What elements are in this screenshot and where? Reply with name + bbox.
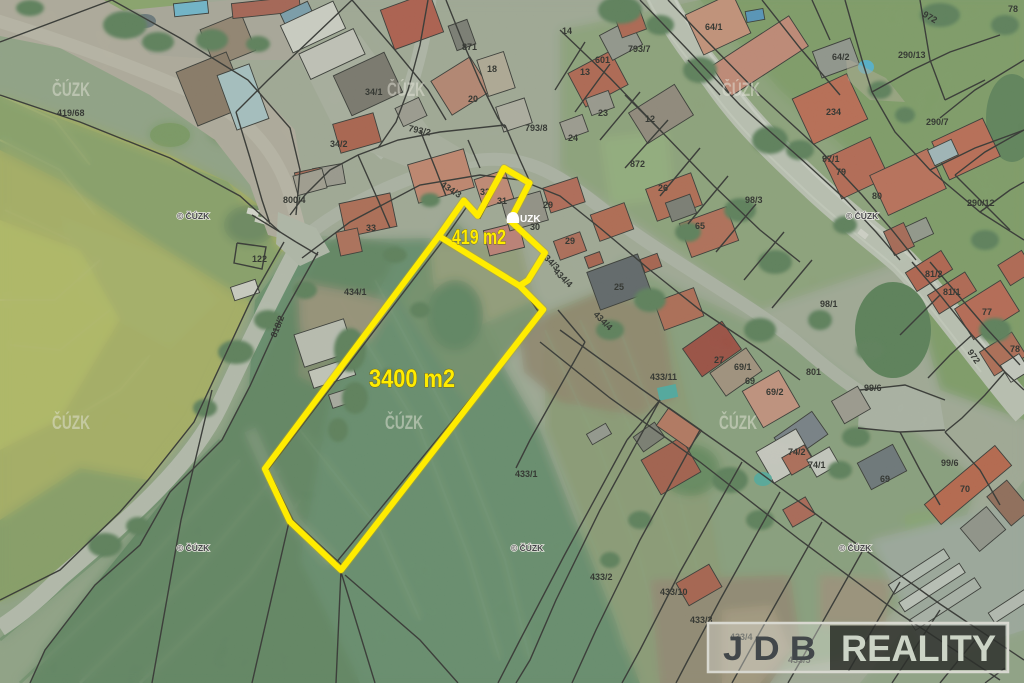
svg-text:© ČÚZK: © ČÚZK (177, 210, 210, 221)
svg-text:ČÚZK: ČÚZK (385, 412, 423, 434)
svg-text:© ČÚZK: © ČÚZK (511, 542, 544, 553)
svg-text:UZK: UZK (520, 214, 541, 225)
svg-text:REALITY: REALITY (841, 628, 996, 669)
svg-text:ČÚZK: ČÚZK (387, 79, 425, 101)
svg-text:ČÚZK: ČÚZK (719, 412, 757, 434)
svg-text:© ČÚZK: © ČÚZK (839, 542, 872, 553)
svg-text:ČÚZK: ČÚZK (52, 79, 90, 101)
svg-text:ČÚZK: ČÚZK (52, 412, 90, 434)
svg-text:© ČÚZK: © ČÚZK (177, 542, 210, 553)
svg-text:419 m2: 419 m2 (452, 226, 506, 249)
svg-text:J D B: J D B (723, 630, 816, 668)
svg-text:3400 m2: 3400 m2 (369, 365, 455, 393)
svg-text:© ČÚZK: © ČÚZK (846, 210, 879, 221)
svg-text:ČÚZK: ČÚZK (722, 79, 760, 101)
